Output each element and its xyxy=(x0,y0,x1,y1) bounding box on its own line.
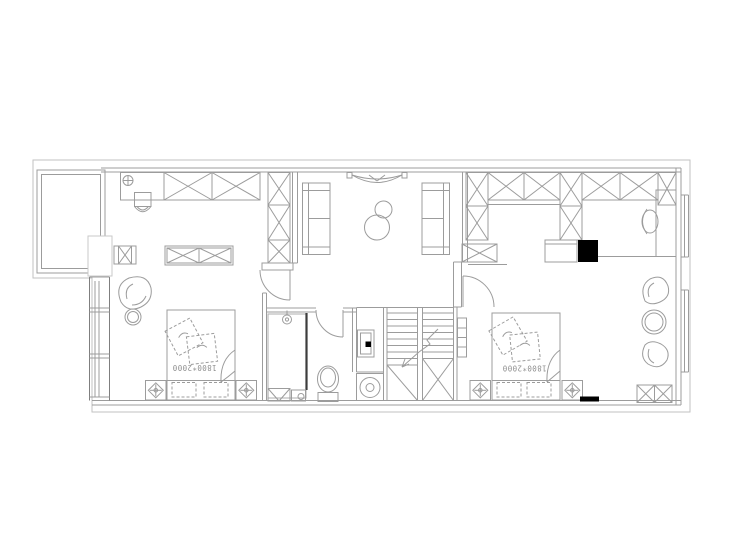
door-bedroom-left xyxy=(260,270,290,300)
balcony-threshold xyxy=(88,236,112,276)
pillow xyxy=(172,383,196,398)
closet-mid-column xyxy=(560,173,582,241)
lounge-table xyxy=(642,310,666,334)
storage-cabinet xyxy=(637,385,672,403)
closet-cabinet xyxy=(462,244,507,265)
partition-walls xyxy=(262,172,468,401)
bay-curtain xyxy=(347,173,407,183)
lounge-chair-bottom xyxy=(643,342,669,367)
toilet xyxy=(318,366,339,402)
door-bathroom xyxy=(316,310,343,337)
blanket-fold xyxy=(221,350,235,382)
pillow xyxy=(497,383,521,398)
bedroom-left: 1800*2000 xyxy=(114,173,290,401)
wardrobe-top xyxy=(164,173,260,201)
desk xyxy=(121,173,165,201)
lounge-chair-top xyxy=(643,277,669,304)
side-table xyxy=(125,309,141,325)
door-bedroom-right xyxy=(463,276,494,307)
table-lamp-icon xyxy=(123,176,133,186)
plot-boundary xyxy=(33,160,690,412)
wardrobe-column xyxy=(268,173,290,264)
cushion xyxy=(186,333,217,364)
balcony xyxy=(37,170,112,276)
blanket-fold xyxy=(547,350,560,382)
tv-block xyxy=(580,397,599,402)
window-right-upper xyxy=(681,195,689,257)
coffee-table xyxy=(365,201,393,240)
closet-top-left xyxy=(488,173,560,205)
shower-area xyxy=(268,314,306,398)
cushion xyxy=(489,317,527,355)
floor-plan: 1800*2000 xyxy=(0,0,740,550)
monitor-block xyxy=(578,240,598,262)
pillow xyxy=(204,383,228,398)
sofa-left xyxy=(303,183,331,255)
floor-plan-canvas: 1800*2000 xyxy=(0,0,740,550)
pillow xyxy=(527,383,551,398)
desk-bench xyxy=(545,240,577,262)
wall-shelf xyxy=(458,318,467,357)
stair-treads xyxy=(387,313,454,365)
sofa-right xyxy=(422,183,450,255)
bed-size-label: 1800*2000 xyxy=(502,364,546,373)
dresser xyxy=(165,246,233,265)
bed-size-label: 1800*2000 xyxy=(172,363,216,372)
living-room xyxy=(303,173,450,255)
shower-head-icon xyxy=(283,311,292,325)
bed-right: 1800*2000 xyxy=(489,313,560,400)
bedroom-right: 1800*2000 xyxy=(458,173,677,403)
nightstand xyxy=(236,381,257,401)
stair-direction-arrow xyxy=(402,329,438,367)
corner-box xyxy=(292,390,306,401)
floor-drain xyxy=(268,389,290,402)
bed-left: 1800*2000 xyxy=(165,310,235,400)
closet-right-column xyxy=(658,173,676,206)
side-cabinet xyxy=(114,246,136,264)
washing-machine xyxy=(357,372,385,401)
basin-cabinet xyxy=(358,330,375,357)
closet-top-right xyxy=(582,173,658,201)
nightstand xyxy=(562,381,583,401)
bathroom xyxy=(268,311,384,402)
desk-chair xyxy=(135,193,152,212)
window-right-lower xyxy=(681,290,689,372)
staircase xyxy=(387,308,454,401)
cushion xyxy=(165,318,203,356)
closet-left-column xyxy=(466,173,488,241)
nightstand xyxy=(146,381,167,401)
nightstand xyxy=(470,381,491,401)
armchair xyxy=(119,277,152,309)
